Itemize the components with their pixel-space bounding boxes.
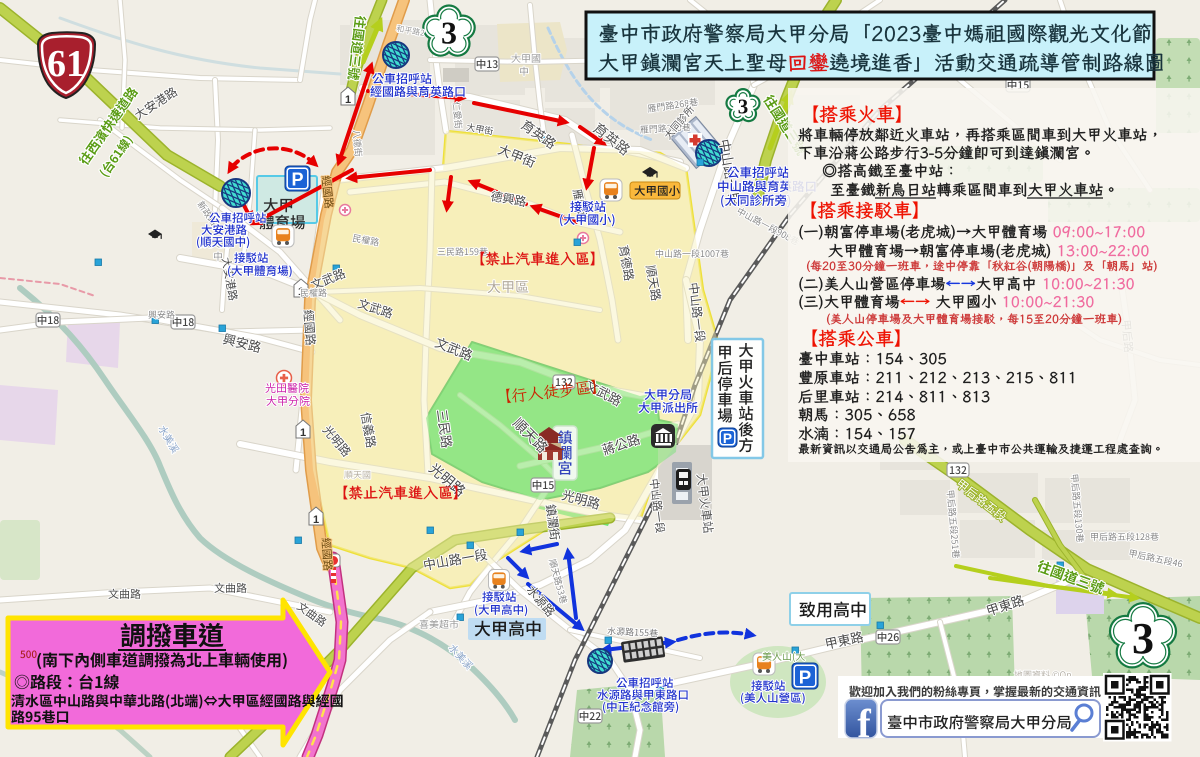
svg-text:61: 61 — [47, 43, 85, 85]
svg-text:f: f — [857, 701, 871, 746]
svg-text:3: 3 — [441, 15, 457, 51]
svg-text:P: P — [799, 666, 811, 687]
svg-text:1: 1 — [313, 514, 319, 526]
svg-text:1: 1 — [345, 94, 351, 106]
svg-text:1: 1 — [300, 427, 306, 439]
svg-text:3: 3 — [1132, 614, 1154, 663]
svg-text:P: P — [723, 431, 732, 446]
svg-text:3: 3 — [738, 95, 749, 119]
svg-text:P: P — [291, 170, 303, 190]
